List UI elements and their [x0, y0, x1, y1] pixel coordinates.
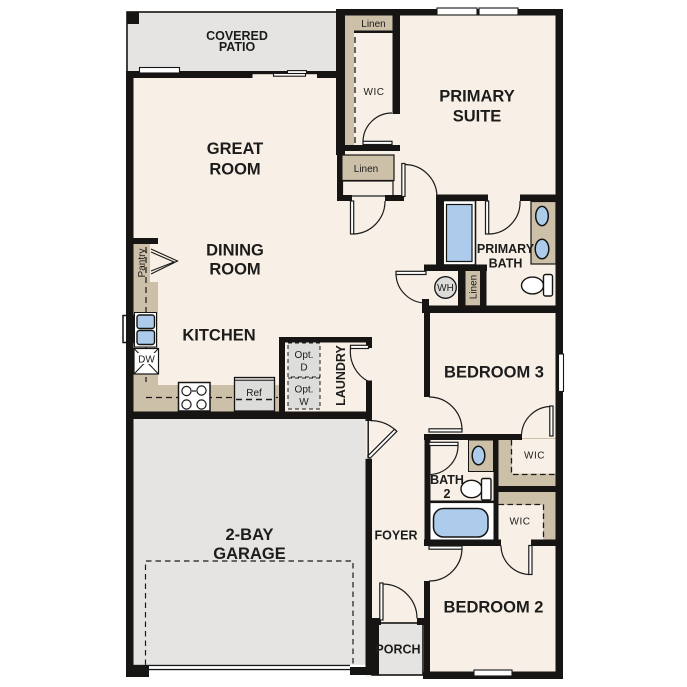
svg-text:Linen: Linen — [361, 19, 385, 30]
svg-text:PATIO: PATIO — [219, 40, 256, 54]
svg-text:W: W — [299, 397, 309, 408]
svg-text:BEDROOM 3: BEDROOM 3 — [444, 364, 544, 382]
svg-text:WIC: WIC — [510, 517, 531, 528]
svg-text:WIC: WIC — [524, 451, 545, 462]
svg-text:Linen: Linen — [469, 275, 480, 299]
svg-text:Pantry: Pantry — [137, 249, 148, 278]
svg-text:PORCH: PORCH — [375, 643, 420, 657]
svg-text:Linen: Linen — [354, 164, 378, 175]
svg-text:LAUNDRY: LAUNDRY — [334, 345, 348, 406]
svg-text:BATH: BATH — [430, 473, 464, 487]
svg-text:PRIMARY: PRIMARY — [477, 242, 535, 256]
svg-text:SUITE: SUITE — [453, 108, 502, 126]
svg-text:Opt.: Opt. — [295, 350, 314, 361]
svg-text:2: 2 — [444, 487, 451, 501]
svg-text:DW: DW — [138, 355, 155, 366]
svg-text:GREAT: GREAT — [207, 140, 264, 158]
svg-text:WH: WH — [437, 283, 454, 294]
svg-text:Ref: Ref — [246, 388, 262, 399]
svg-text:ROOM: ROOM — [209, 261, 260, 279]
svg-text:KITCHEN: KITCHEN — [182, 327, 255, 345]
svg-text:D: D — [300, 363, 307, 374]
svg-text:ROOM: ROOM — [209, 161, 260, 179]
svg-text:2-BAY: 2-BAY — [226, 526, 274, 544]
svg-text:Opt.: Opt. — [295, 385, 314, 396]
svg-text:FOYER: FOYER — [374, 529, 417, 543]
svg-text:PRIMARY: PRIMARY — [439, 88, 514, 106]
svg-text:BATH: BATH — [489, 257, 523, 271]
svg-text:GARAGE: GARAGE — [213, 545, 285, 563]
svg-text:WIC: WIC — [364, 87, 385, 98]
svg-text:BEDROOM 2: BEDROOM 2 — [444, 599, 544, 617]
svg-text:DINING: DINING — [206, 242, 264, 260]
